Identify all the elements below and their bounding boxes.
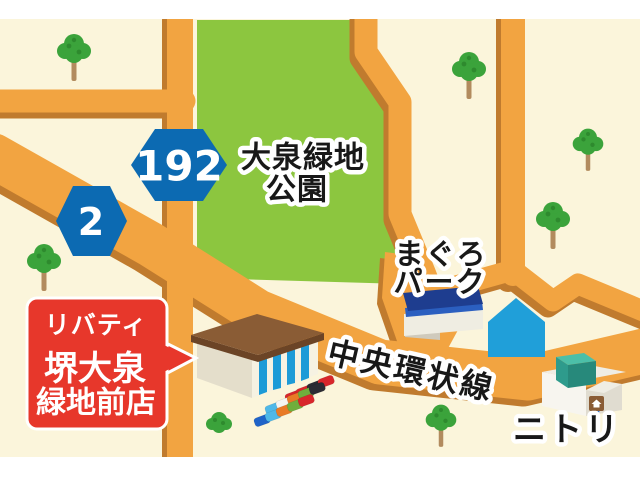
nitori-label: ニトリ ニトリ [513, 410, 621, 449]
store-location-map: 192 2 大泉緑地 公園 大泉緑地 公園 まぐろ パーク まぐろ パーク 中央… [0, 0, 640, 480]
store-sign-line3: 緑地前店 [36, 386, 156, 421]
maguro-park-line2: パーク [393, 265, 486, 299]
map-canvas: 192 2 大泉緑地 公園 大泉緑地 公園 まぐろ パーク まぐろ パーク 中央… [0, 0, 640, 480]
route-shield-2-number: 2 [78, 200, 104, 244]
park-name-line1: 大泉緑地 [241, 141, 365, 176]
nitori-text: ニトリ [513, 410, 621, 449]
route-shield-192-number: 192 [135, 142, 223, 191]
maguro-park-label: まぐろ パーク まぐろ パーク [393, 237, 487, 299]
top-margin [0, 0, 640, 19]
store-sign-line1: リバティ [45, 311, 148, 340]
nitori-cube [556, 353, 596, 388]
store-sign-line2: 堺大泉 [44, 349, 146, 389]
bottom-margin [0, 457, 640, 480]
park-name-line2: 公園 [266, 173, 328, 208]
